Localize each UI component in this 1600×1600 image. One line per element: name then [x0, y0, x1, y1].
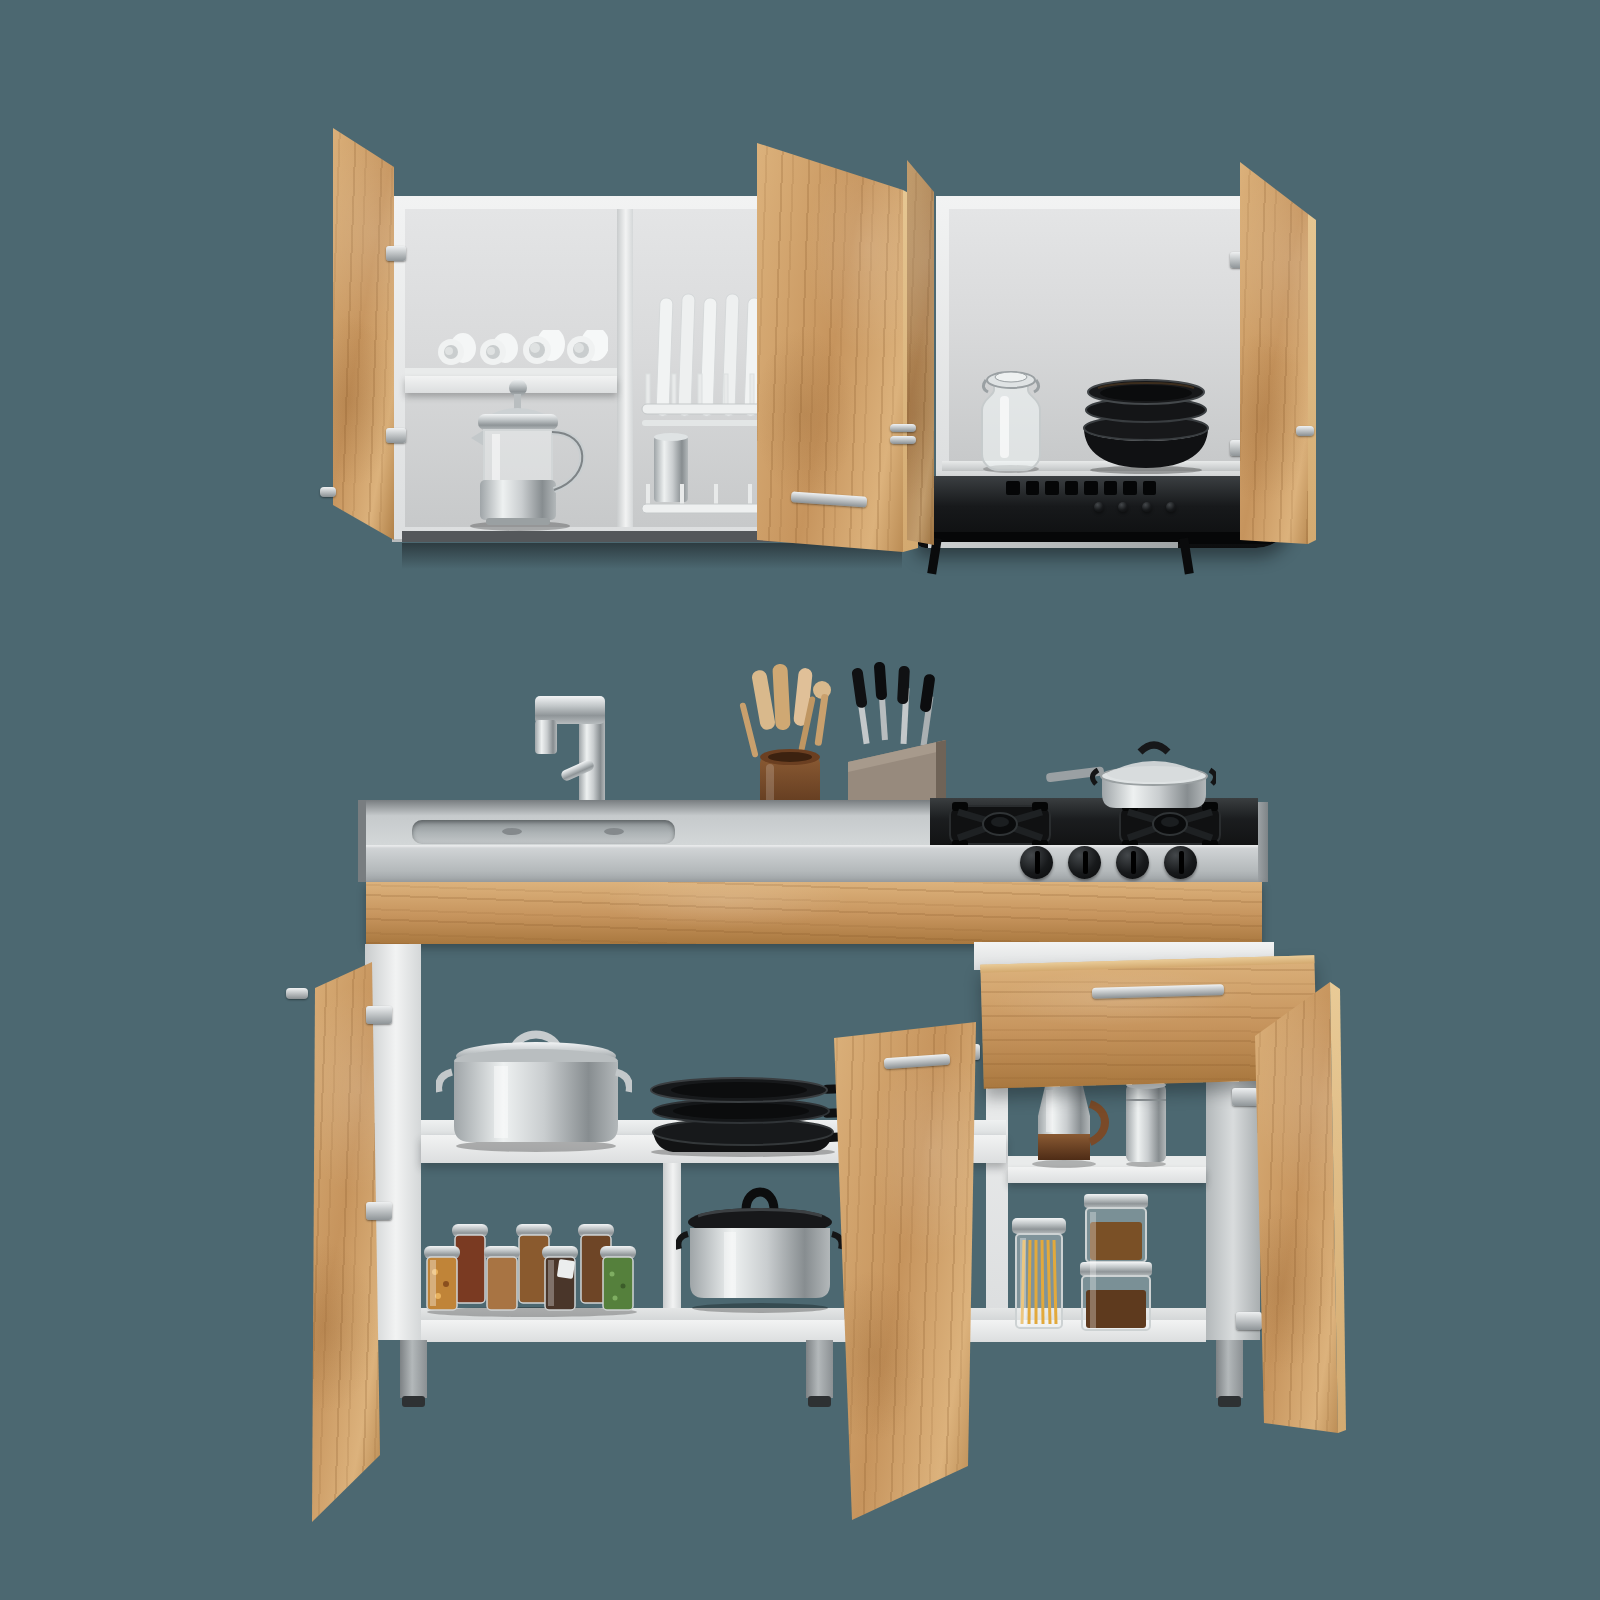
cup — [438, 333, 476, 365]
cooktop-knob[interactable] — [1068, 846, 1101, 879]
stockpot — [436, 1026, 632, 1152]
wall-left-door-knob[interactable] — [320, 487, 336, 497]
black-bowls-stack — [1078, 378, 1214, 474]
base-middle-door[interactable] — [826, 1018, 984, 1530]
lid-knob — [1140, 745, 1168, 752]
base-leg-foot — [402, 1396, 425, 1407]
french-press — [440, 372, 610, 532]
wall-right-door-knob[interactable] — [1296, 426, 1314, 436]
wall-right-door-face — [1238, 160, 1318, 552]
base-left-door-hinge — [366, 1202, 392, 1220]
wall-middle-door[interactable] — [755, 140, 921, 556]
stacked-canisters — [1076, 1192, 1160, 1334]
wall-narrow-door-handle-lower — [890, 436, 916, 444]
wall-left-door-hinge — [386, 246, 406, 261]
hood-light-strip — [928, 542, 1178, 548]
base-middle-door-face — [826, 1018, 984, 1530]
glass-clip-jar — [972, 362, 1050, 474]
wall-cabinet-partition — [617, 209, 633, 527]
spaghetti-canister — [1008, 1216, 1070, 1332]
silver-pot-black-lid — [676, 1180, 844, 1314]
base-left-door[interactable] — [300, 935, 386, 1530]
cooktop-knob[interactable] — [1116, 846, 1149, 879]
counter-left-end — [358, 800, 366, 882]
hood-vent-grid — [1006, 481, 1156, 495]
cup — [480, 333, 518, 365]
sink-tap-hole — [604, 828, 624, 835]
pot-lid-loop — [746, 1192, 774, 1210]
wall-middle-door-face — [755, 140, 921, 556]
base-left-door-hinge — [366, 1006, 392, 1024]
wall-left-door[interactable] — [328, 124, 398, 544]
product-photo-kitchen-set — [0, 0, 1600, 1600]
base-leg — [1216, 1340, 1243, 1398]
wall-right-door[interactable] — [1238, 160, 1318, 552]
base-left-door-knob[interactable] — [286, 988, 308, 999]
wall-left-door-hinge — [386, 428, 406, 443]
wooden-utensils — [739, 664, 831, 758]
wall-narrow-door-handle[interactable] — [890, 424, 916, 432]
sink-tap-hole — [502, 828, 522, 835]
base-right-door[interactable] — [1250, 975, 1350, 1450]
sink-basin — [412, 820, 675, 844]
base-left-door-face — [300, 935, 386, 1530]
hood-button[interactable] — [1142, 502, 1152, 512]
spice-jars — [422, 1222, 654, 1317]
knives — [851, 662, 935, 746]
spice-jar-back-row — [452, 1224, 614, 1303]
hood-button[interactable] — [1166, 502, 1176, 512]
white-cups — [436, 330, 608, 370]
hood-button[interactable] — [1118, 502, 1128, 512]
hood-button[interactable] — [1094, 502, 1104, 512]
wall-right-cabinet-left-door[interactable] — [905, 158, 937, 548]
cup — [523, 330, 565, 364]
carafe-handle — [1090, 1104, 1105, 1142]
counter-right-end — [1258, 802, 1268, 882]
jar-label — [557, 1259, 575, 1279]
cup — [567, 330, 608, 364]
cooktop-knob[interactable] — [1020, 846, 1053, 879]
counter-apron — [366, 882, 1262, 944]
french-press-handle — [552, 432, 582, 490]
steel-canister — [1122, 1078, 1170, 1168]
base-leg-foot — [1218, 1396, 1241, 1407]
cooktop-knob[interactable] — [1164, 846, 1197, 879]
range-hood — [916, 476, 1292, 548]
base-leg — [400, 1340, 427, 1398]
saute-pan — [1044, 730, 1216, 822]
